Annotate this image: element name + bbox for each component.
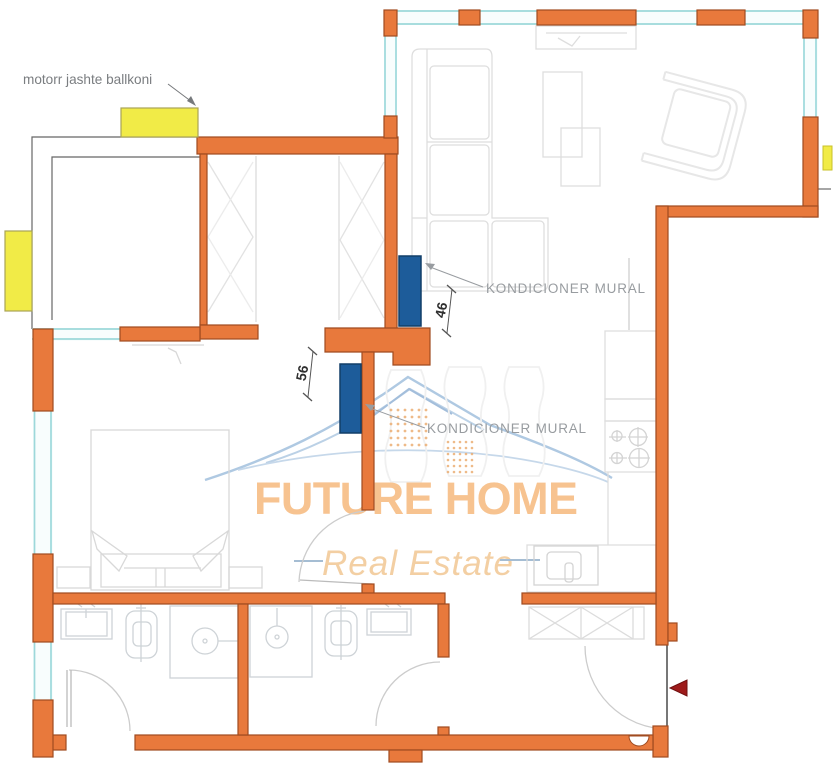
svg-text:FUTURE HOME: FUTURE HOME xyxy=(254,473,577,524)
svg-text:KONDICIONER MURAL: KONDICIONER MURAL xyxy=(486,281,646,296)
svg-text:KONDICIONER MURAL: KONDICIONER MURAL xyxy=(427,421,587,436)
svg-text:Real Estate: Real Estate xyxy=(322,544,514,583)
svg-text:motorr jashte ballkoni: motorr jashte ballkoni xyxy=(23,72,152,87)
